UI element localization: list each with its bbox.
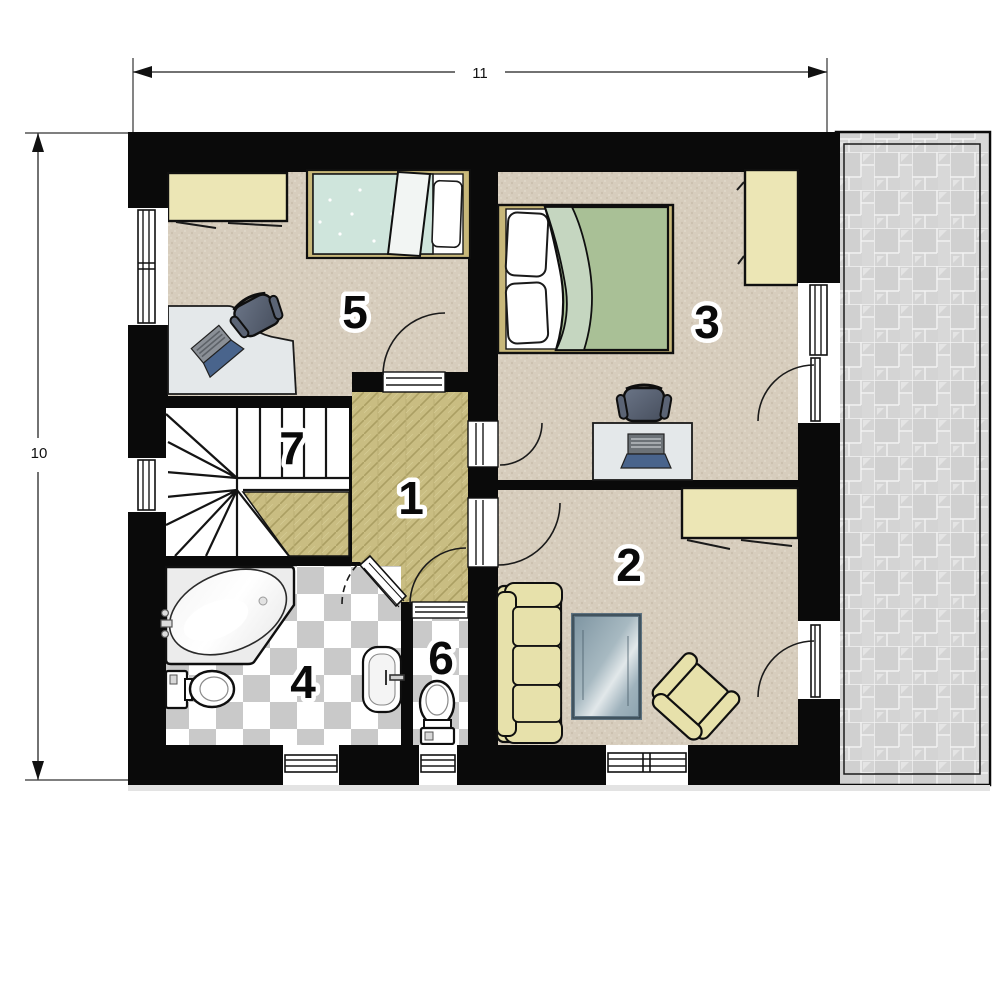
dimension-height: 10 [22, 133, 128, 780]
room-label-2: 2 [616, 539, 642, 591]
room5-bed-icon [307, 170, 470, 258]
wall-room5-stairs [128, 396, 358, 408]
room-label-4: 4 [290, 656, 316, 708]
room-label-5: 5 [342, 286, 368, 338]
room2-sofa-icon [497, 583, 562, 743]
floor-plan-page: 1 2 3 4 5 6 7 11 10 [0, 0, 1000, 1000]
dimension-width-label: 11 [472, 65, 488, 82]
terrace-floor [836, 132, 990, 785]
room5-wardrobe-icon [168, 173, 287, 228]
room3-wardrobe-icon [737, 170, 798, 285]
house-shadow [128, 785, 990, 791]
wall-bottom [128, 745, 840, 785]
bathroom-sink-icon [363, 647, 404, 712]
room3-bed-icon [498, 205, 673, 353]
wc-toilet-icon [420, 681, 454, 744]
room-label-3: 3 [694, 296, 720, 348]
window-room5-icon [128, 208, 168, 325]
window-room2-icon [606, 745, 688, 785]
wall-stairs-bath [128, 556, 360, 566]
window-room3-icon [798, 283, 840, 357]
room-label-6: 6 [428, 632, 454, 684]
room2-table-icon [573, 615, 640, 718]
floor-plan-drawing: 1 2 3 4 5 6 7 11 10 [0, 0, 1000, 1000]
window-wc-icon [419, 745, 457, 785]
room3-laptop-icon [621, 434, 671, 468]
room-label-1: 1 [398, 472, 424, 524]
window-bathroom-icon [283, 745, 339, 785]
window-stairs-icon [128, 458, 168, 512]
terrace [836, 132, 990, 785]
dimension-width: 11 [133, 58, 827, 132]
room3-desk-icon [593, 423, 692, 480]
wall-stairs-hall-line [349, 408, 352, 494]
room-label-7: 7 [279, 422, 305, 474]
dimension-height-label: 10 [31, 445, 48, 462]
bathroom-toilet-icon [166, 671, 234, 708]
wall-top [128, 132, 840, 172]
